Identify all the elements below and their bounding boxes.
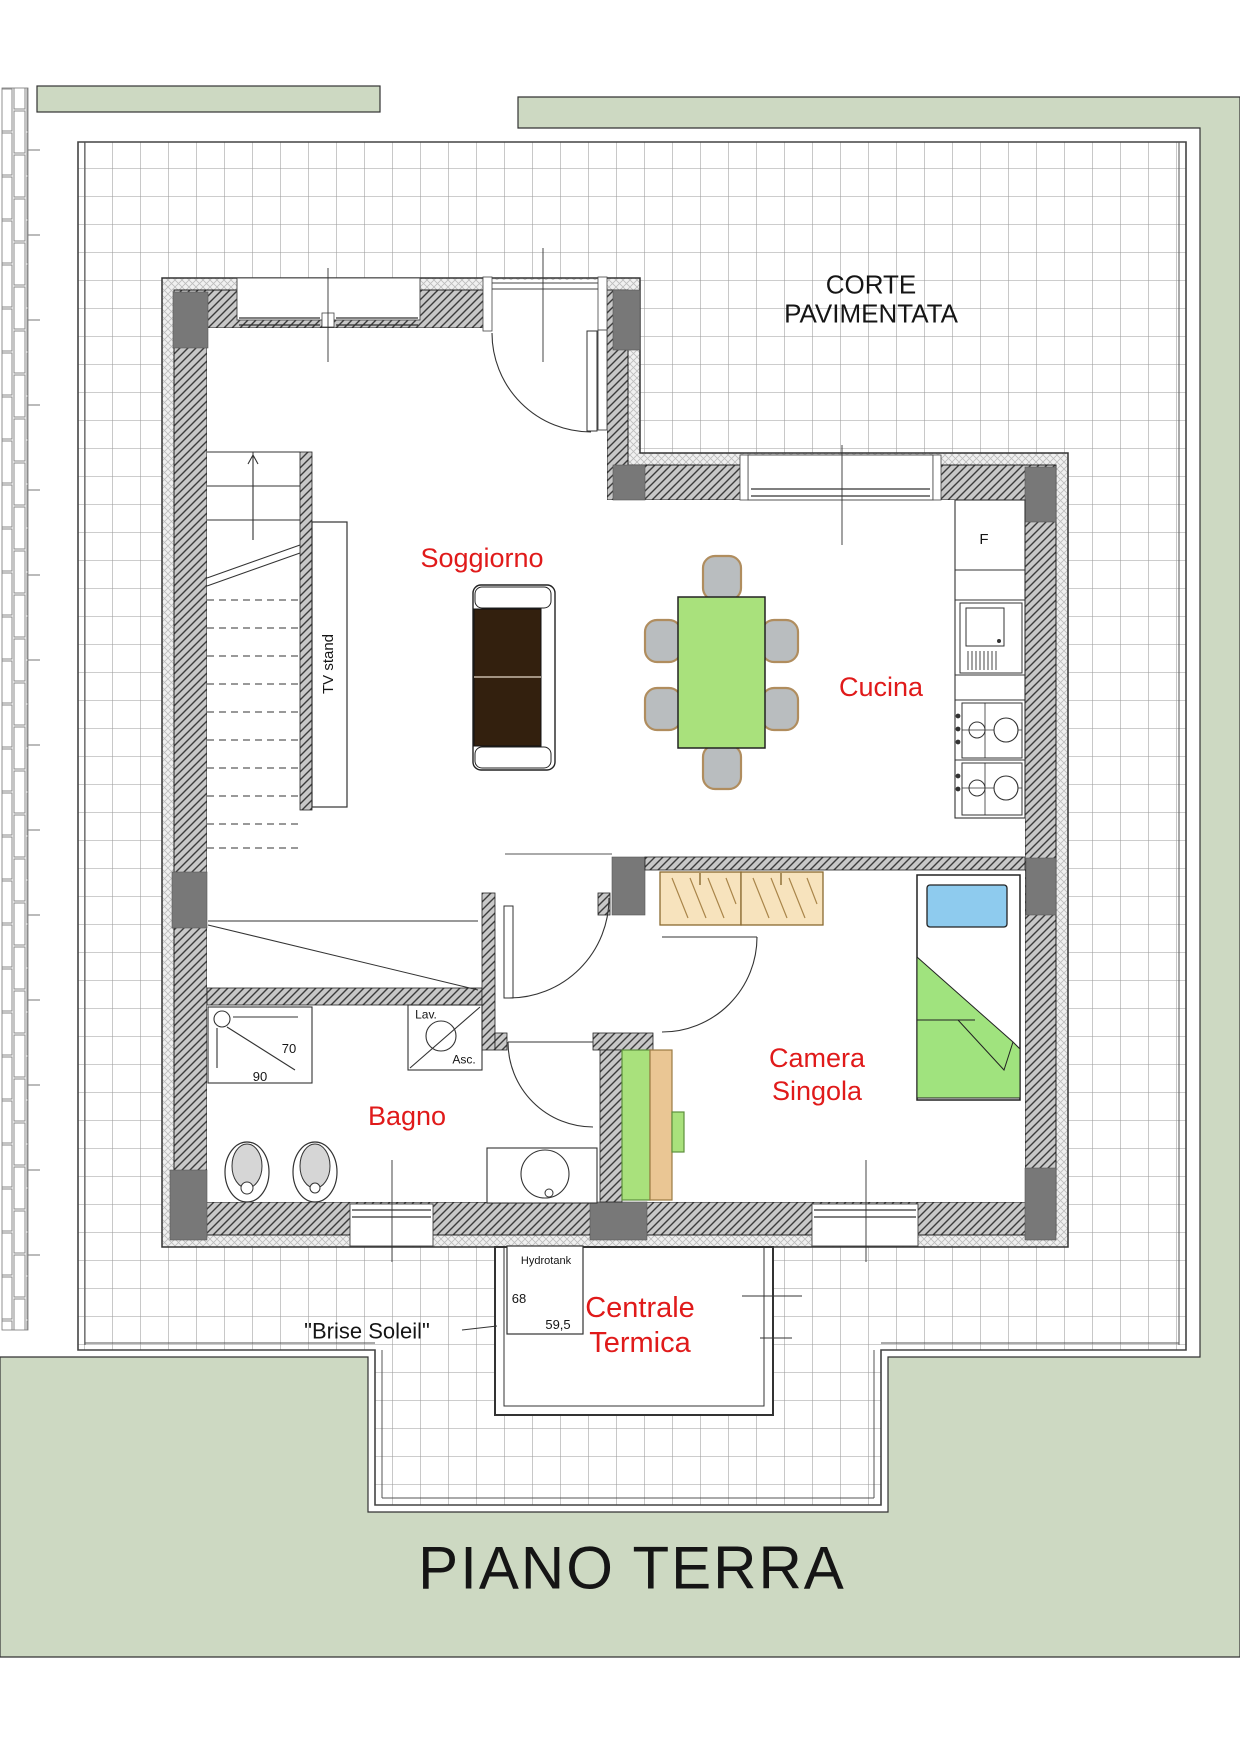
entrance-door-opening <box>483 277 607 331</box>
brise-soleil-label: "Brise Soleil" <box>304 1319 430 1342</box>
dining-table <box>678 597 765 748</box>
sofa <box>473 585 555 770</box>
washer-label-top: Lav. <box>415 1009 437 1022</box>
room-label-cucina: Cucina <box>839 673 923 701</box>
room-label-centrale-line2: Termica <box>589 1328 691 1358</box>
wardrobe <box>660 872 823 925</box>
washer-label-bottom: Asc. <box>452 1054 475 1067</box>
window-step-wall <box>598 330 607 430</box>
bathroom-sink <box>487 1148 597 1203</box>
room-label-bagno: Bagno <box>368 1102 446 1130</box>
shower-dim-depth: 90 <box>253 1070 267 1084</box>
window-bathroom <box>350 1204 433 1246</box>
courtyard-label-line2: PAVIMENTATA <box>784 300 958 327</box>
hydrotank-dim1: 68 <box>512 1292 526 1306</box>
room-label-camera-line2: Singola <box>772 1077 862 1105</box>
floor-plan-canvas: CORTE PAVIMENTATA Soggiorno Cucina Bagno… <box>0 0 1240 1755</box>
room-label-centrale-line1: Centrale <box>585 1293 695 1323</box>
hydrotank-dim2: 59,5 <box>545 1318 570 1332</box>
tv-stand-label: TV stand <box>321 634 337 694</box>
bidet <box>293 1142 337 1202</box>
room-label-camera-line1: Camera <box>769 1044 865 1072</box>
paving-strip <box>2 88 40 1330</box>
window-living <box>237 278 420 327</box>
kitchen-counter <box>955 500 1025 818</box>
plan-title: PIANO TERRA <box>418 1537 846 1600</box>
toilet <box>225 1142 269 1202</box>
hydrotank-label: Hydrotank <box>521 1256 571 1268</box>
window-bedroom <box>812 1204 918 1246</box>
floor-plan-drawing <box>0 0 1240 1755</box>
bed <box>917 875 1020 1100</box>
shower-dim-width: 70 <box>282 1042 296 1056</box>
window-kitchen <box>740 455 941 500</box>
courtyard-label-line1: CORTE <box>826 271 917 298</box>
room-label-soggiorno: Soggiorno <box>420 544 543 572</box>
fridge-label: F <box>979 532 988 548</box>
